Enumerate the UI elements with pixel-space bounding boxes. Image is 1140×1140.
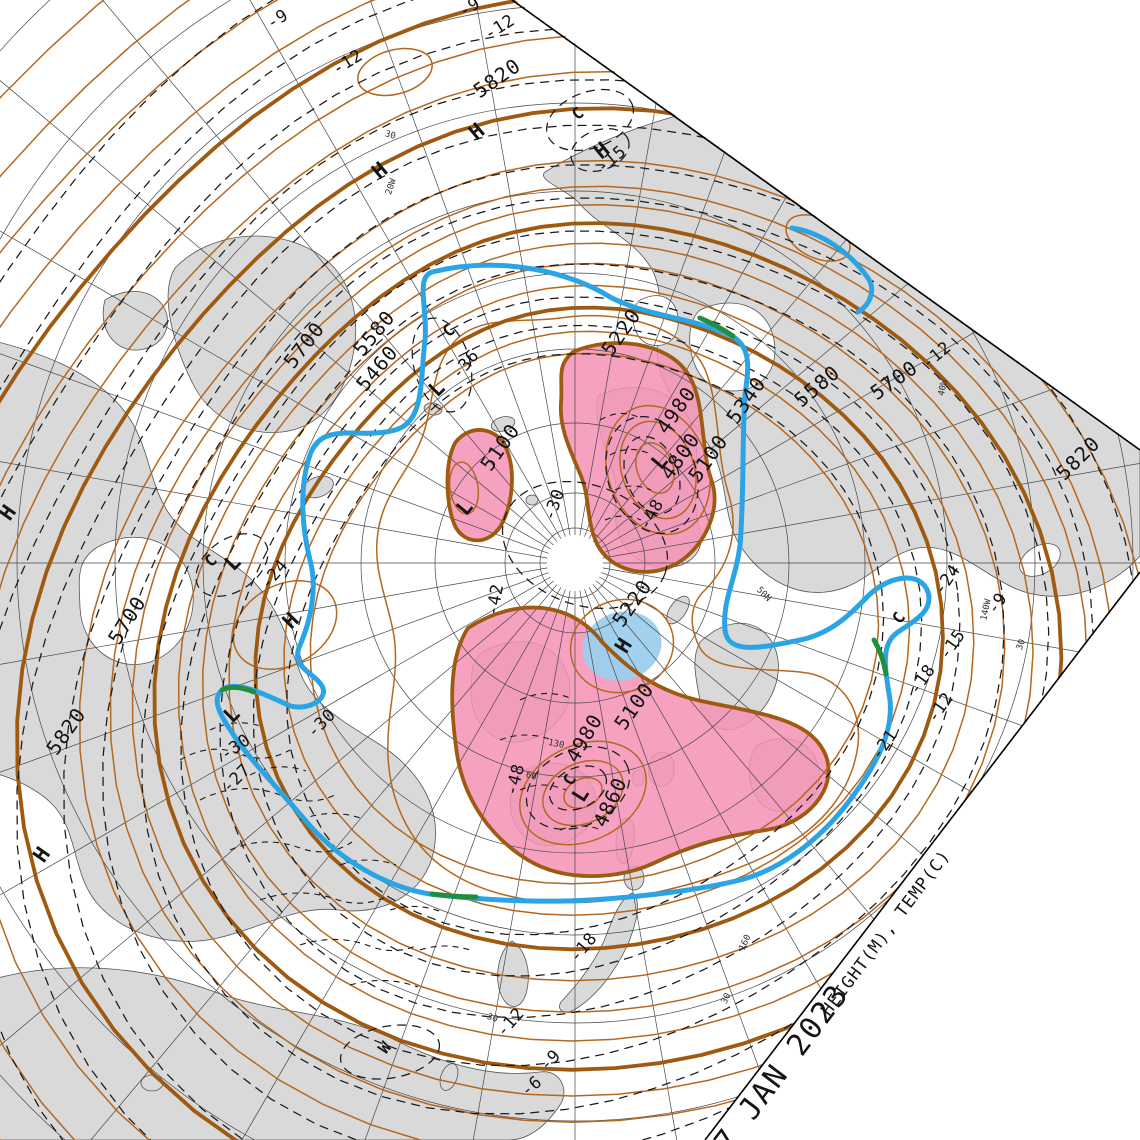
landmass-island-small-2 xyxy=(526,495,538,505)
weather-map-page: 5820582058205700570057005580558054605340… xyxy=(0,0,1140,1140)
green-isotherm-segment-3 xyxy=(432,894,476,897)
upper-air-chart-canvas xyxy=(0,0,1140,1140)
